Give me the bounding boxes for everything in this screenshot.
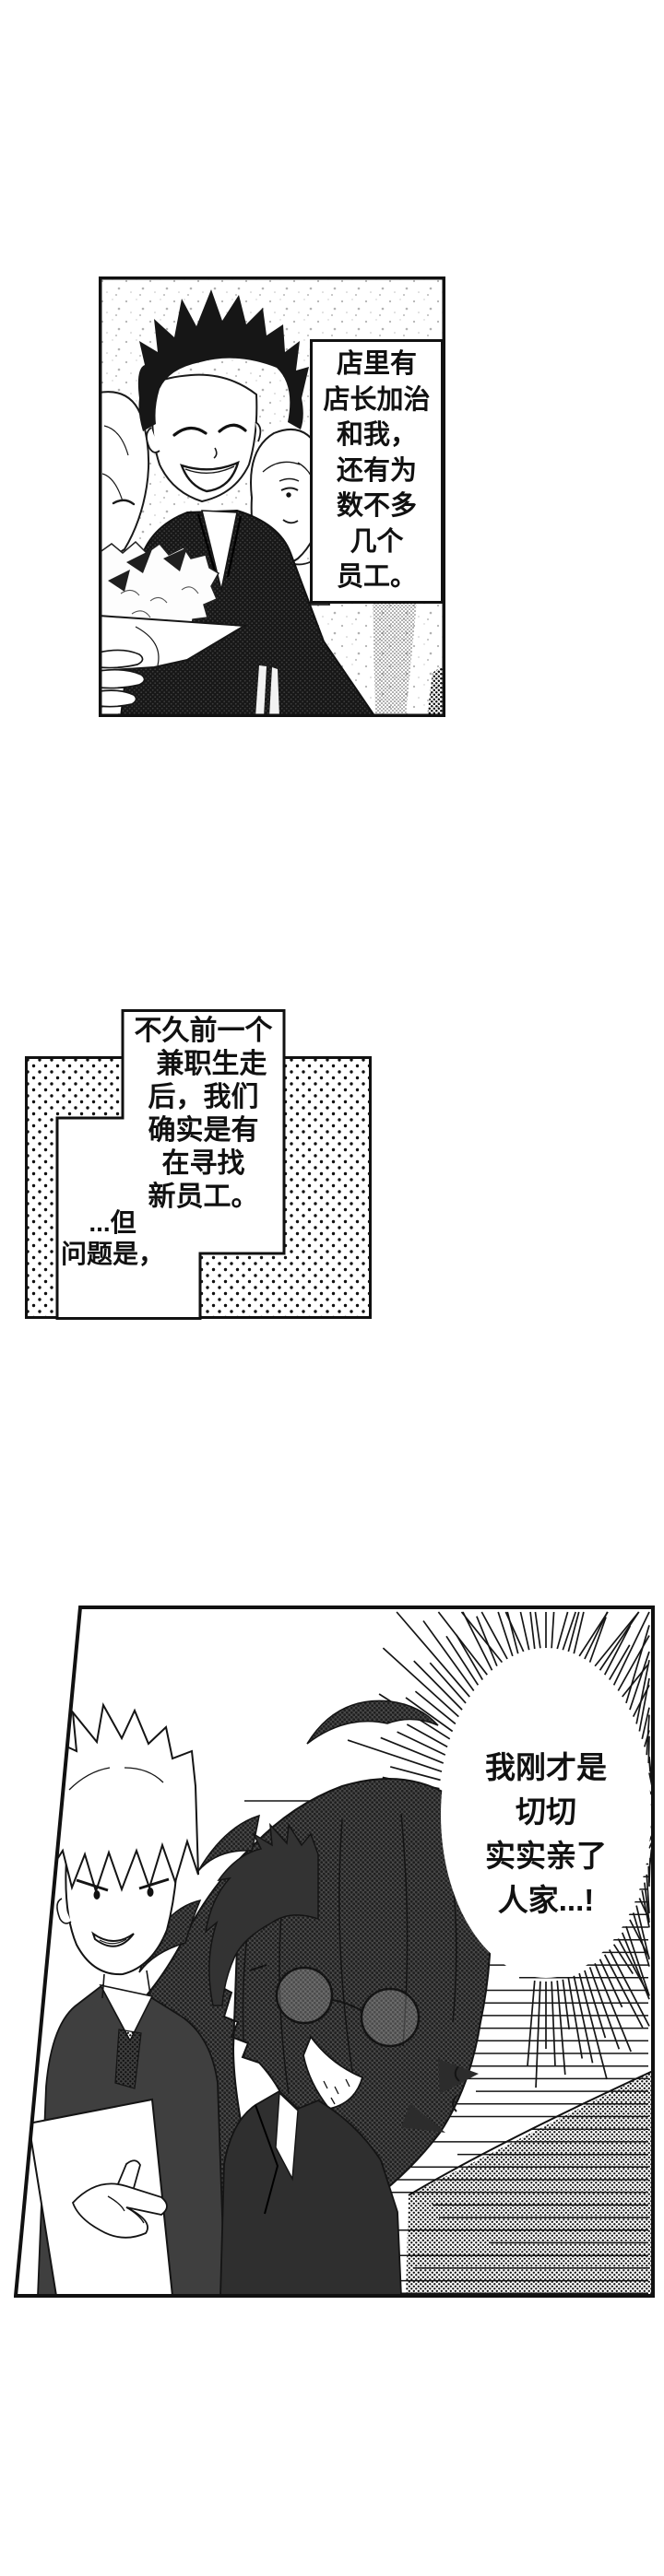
panel-3: 我刚才是 切切 实实亲了 人家...!	[14, 1606, 655, 2298]
narration-line: ...但	[54, 1207, 171, 1239]
narration-box-1: 店里有 店长加治 和我， 还有为 数不多 几个 员工。	[310, 339, 444, 604]
narration-line: 兼职生走	[131, 1048, 292, 1081]
speech-line: 人家...!	[440, 1878, 652, 1923]
panel-2: 不久前一个 兼职生走 后，我们 确实是有 在寻找 新员工。 ...但 问题是，	[25, 1009, 372, 1320]
narration-line: 店里有	[313, 347, 441, 382]
panel-1: 店里有 店长加治 和我， 还有为 数不多 几个 员工。	[99, 276, 445, 717]
glasses-lens	[362, 1989, 419, 2046]
narration-line: 确实是有	[123, 1114, 284, 1147]
narration-line: 和我，	[313, 418, 441, 453]
panel-3-artwork	[14, 1606, 655, 2298]
narration-line: 还有为	[313, 453, 441, 489]
speech-bubble-text: 我刚才是 切切 实实亲了 人家...!	[440, 1746, 652, 1923]
glasses-lens	[277, 1968, 332, 2023]
narration-line: 几个	[313, 524, 441, 560]
speech-line: 实实亲了	[440, 1834, 652, 1878]
narration-line: 后，我们	[123, 1081, 284, 1114]
speech-line: 切切	[440, 1790, 652, 1834]
narration-line: 在寻找	[123, 1147, 284, 1181]
narration-line: 员工。	[313, 559, 441, 595]
narration-column: 不久前一个 兼职生走 后，我们 确实是有 在寻找 新员工。	[123, 1015, 284, 1214]
narration-line: 店长加治	[313, 382, 441, 418]
speech-line: 我刚才是	[440, 1746, 652, 1790]
narration-aside: ...但 问题是，	[54, 1207, 171, 1270]
manga-page: 店里有 店长加治 和我， 还有为 数不多 几个 员工。 不久前一个 兼职生走 后…	[0, 0, 664, 2576]
narration-line: 问题是，	[54, 1239, 171, 1270]
narration-line: 不久前一个	[123, 1015, 284, 1048]
narration-line: 数不多	[313, 488, 441, 524]
